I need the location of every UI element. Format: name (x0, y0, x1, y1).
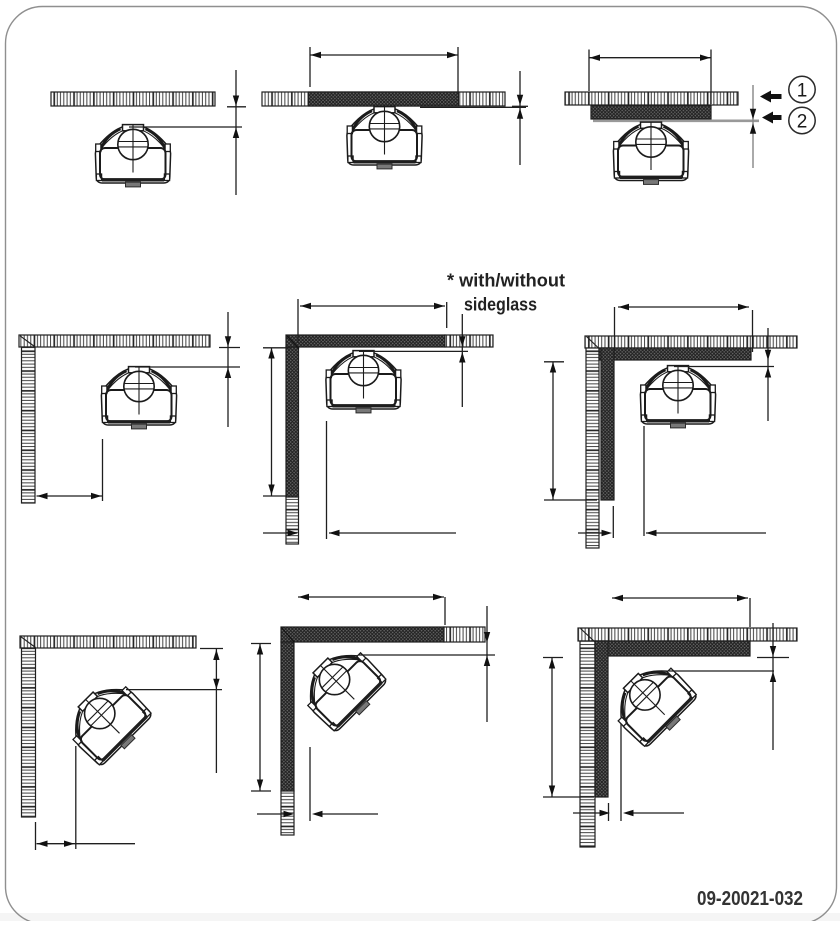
svg-text:* with/without: * with/without (447, 271, 565, 291)
svg-text:sideglass: sideglass (464, 295, 537, 315)
svg-text:1: 1 (797, 81, 808, 102)
svg-text:2: 2 (797, 112, 808, 133)
svg-text:09-20021-032: 09-20021-032 (697, 888, 803, 910)
